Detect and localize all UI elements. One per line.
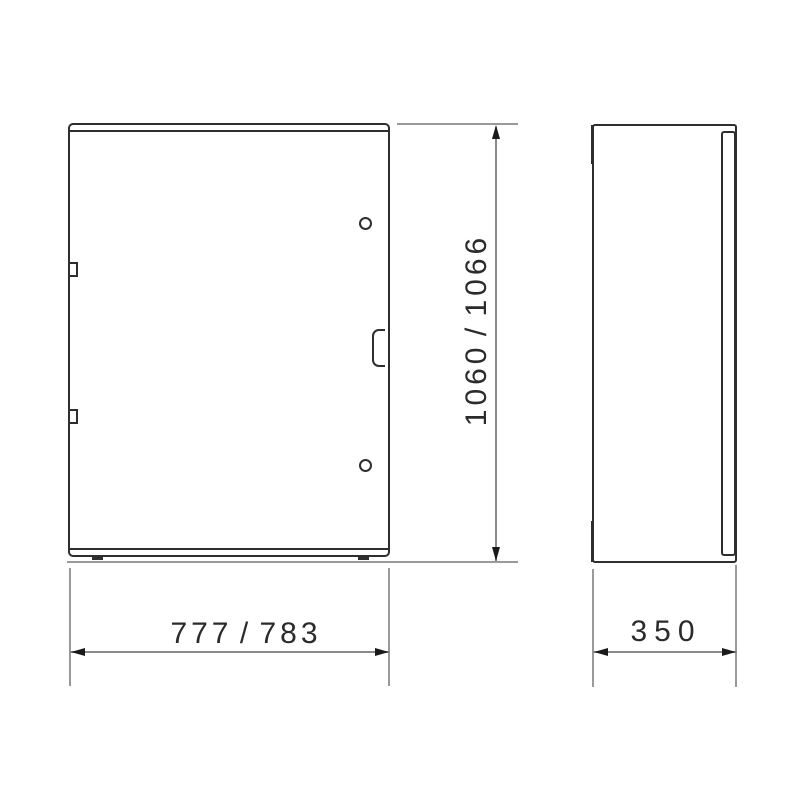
side-rear-edge-top-segment bbox=[591, 125, 594, 164]
depth-dimension-line bbox=[593, 651, 737, 653]
side-rear-edge-bottom-segment bbox=[591, 521, 594, 562]
front-foot-notch-left bbox=[92, 557, 103, 560]
front-foot-notch-right bbox=[358, 557, 369, 560]
front-top-trim-line bbox=[69, 130, 389, 132]
technical-drawing-canvas: 1060 / 1066 777 / 783 350 bbox=[0, 0, 800, 800]
width-extension-line-right bbox=[388, 568, 390, 686]
depth-arrow-right-icon bbox=[722, 648, 736, 656]
front-bottom-trim-line bbox=[69, 548, 389, 550]
height-dimension-label: 1060 / 1066 bbox=[462, 234, 492, 426]
lock-hole-bottom bbox=[359, 459, 372, 472]
height-arrow-top-icon bbox=[492, 125, 500, 139]
hinge-bottom bbox=[69, 409, 78, 424]
hinge-top bbox=[69, 262, 78, 277]
depth-arrow-left-icon bbox=[594, 648, 608, 656]
door-handle bbox=[372, 329, 385, 367]
lock-hole-top bbox=[359, 217, 372, 230]
width-dimension-label: 777 / 783 bbox=[170, 619, 321, 649]
front-view-outline bbox=[68, 123, 390, 557]
depth-extension-line-right bbox=[735, 565, 737, 687]
width-arrow-left-icon bbox=[71, 648, 85, 656]
side-door-panel bbox=[721, 131, 736, 556]
depth-dimension-label: 350 bbox=[630, 617, 701, 647]
height-dimension-line bbox=[495, 127, 497, 561]
height-extension-line-bottom bbox=[67, 561, 518, 563]
height-arrow-bottom-icon bbox=[492, 547, 500, 561]
depth-extension-line-left bbox=[592, 569, 594, 687]
width-extension-line-left bbox=[69, 568, 71, 686]
width-arrow-right-icon bbox=[375, 648, 389, 656]
side-view-outline bbox=[592, 124, 737, 563]
width-dimension-line bbox=[70, 651, 390, 653]
